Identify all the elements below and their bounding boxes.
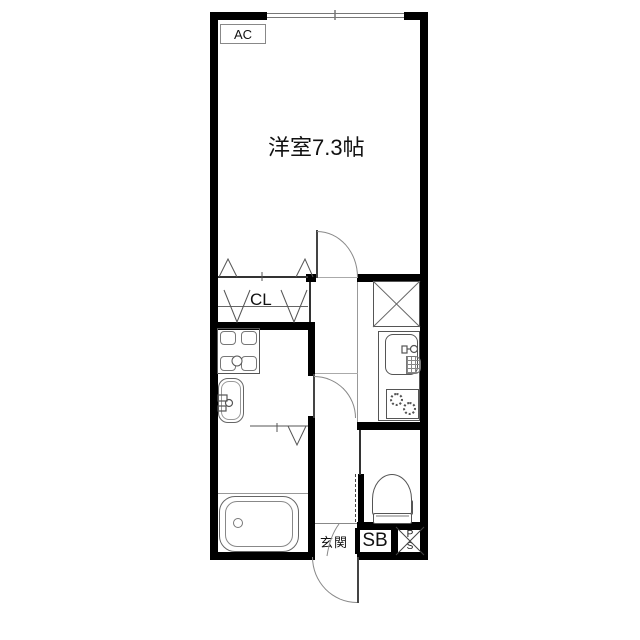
stove-burner-1: [390, 393, 403, 406]
toilet-left-line: [359, 430, 361, 475]
wall-bottom-left: [210, 552, 315, 560]
entrance-step-line: [315, 523, 357, 524]
bathtub-inner: [225, 501, 293, 547]
entrance-door-arc: [312, 557, 357, 603]
wall-right: [420, 12, 428, 558]
floorplan-canvas: AC 洋室7.3帖 CL 玄関 SB P S: [0, 0, 640, 640]
toilet-sliding-door-dashed: [355, 474, 356, 522]
bathroom-folding-door-icon: [250, 423, 308, 445]
wall-top-left: [210, 12, 267, 20]
room-door-arc: [317, 231, 358, 277]
entrance-label: 玄関: [320, 532, 348, 551]
closet-front-line: [218, 276, 308, 278]
wall-toilet-left: [358, 474, 364, 524]
ac-box: AC: [220, 24, 266, 44]
wall-corridor-left-upper: [308, 322, 315, 376]
washbasin-inner: [221, 381, 241, 420]
washer-pad-tl: [220, 331, 236, 345]
toilet-bowl: [372, 474, 412, 517]
entrance-door-leaf: [357, 557, 359, 603]
room-label: 洋室7.3帖: [268, 130, 365, 162]
washroom-door-arc: [314, 376, 356, 418]
window: [267, 13, 404, 18]
toilet-tank: [373, 513, 412, 524]
bath-edge-line: [218, 493, 308, 494]
room-door-threshold: [316, 277, 358, 278]
closet-right-line: [309, 282, 311, 322]
washer-pad-tr: [241, 331, 257, 345]
sink-drain-rack: [406, 356, 421, 374]
pipe-space-box: P S: [396, 527, 424, 555]
wall-kitchen-bottom: [357, 422, 428, 430]
pipe-space-label-s: S: [398, 541, 422, 553]
stove-burner-2: [403, 402, 416, 415]
wall-corridor-left-lower: [308, 416, 315, 556]
ac-label: AC: [221, 27, 265, 42]
washroom-door-threshold: [315, 373, 358, 374]
washer-pad-br: [241, 356, 257, 371]
pipe-space-label-p: P: [398, 529, 422, 541]
wall-left: [210, 12, 218, 560]
corridor-kitchen-line: [357, 282, 358, 422]
shoebox-label: SB: [358, 530, 392, 552]
cross-box: [373, 281, 420, 327]
washer-pad-bl: [220, 356, 236, 371]
closet-label: CL: [250, 290, 272, 310]
